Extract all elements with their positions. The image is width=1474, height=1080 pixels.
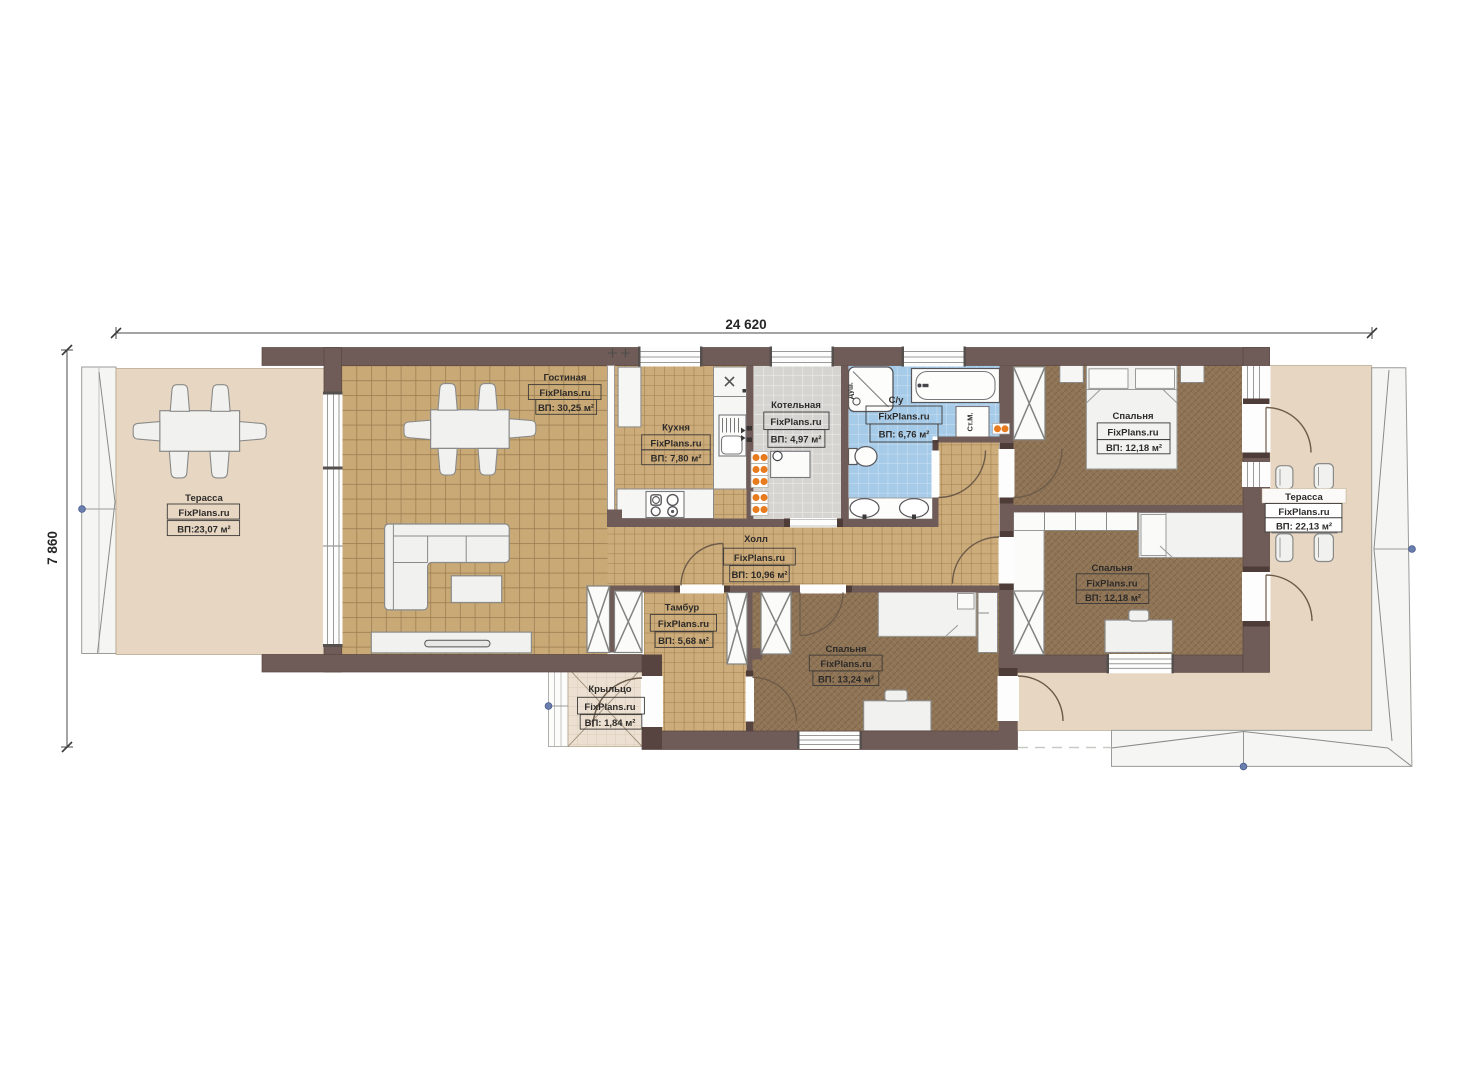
svg-text:FixPlans.ru: FixPlans.ru	[1086, 578, 1137, 589]
svg-text:FixPlans.ru: FixPlans.ru	[1278, 507, 1329, 518]
svg-text:ВП: 1,84 м²: ВП: 1,84 м²	[585, 718, 636, 729]
svg-text:Гостиная: Гостиная	[544, 373, 587, 384]
svg-text:ВП: 5,68 м²: ВП: 5,68 м²	[658, 636, 709, 647]
svg-text:FixPlans.ru: FixPlans.ru	[770, 417, 821, 428]
svg-text:Спальня: Спальня	[825, 644, 866, 655]
svg-text:Крыльцо: Крыльцо	[588, 684, 631, 695]
svg-text:Холл: Холл	[744, 534, 768, 545]
svg-text:FixPlans.ru: FixPlans.ru	[650, 438, 701, 449]
svg-text:FixPlans.ru: FixPlans.ru	[878, 412, 929, 423]
svg-text:ВП: 30,25 м²: ВП: 30,25 м²	[538, 403, 594, 414]
svg-text:Терасса: Терасса	[185, 493, 223, 504]
svg-text:ВП: 6,76 м²: ВП: 6,76 м²	[879, 430, 930, 441]
svg-text:Ст.М.: Ст.М.	[966, 413, 975, 432]
svg-text:ВП: 4,97 м²: ВП: 4,97 м²	[771, 435, 822, 446]
svg-text:FixPlans.ru: FixPlans.ru	[539, 388, 590, 399]
svg-text:Терасса: Терасса	[1285, 492, 1323, 503]
svg-text:ВП: 7,80 м²: ВП: 7,80 м²	[651, 453, 702, 464]
svg-text:Тамбур: Тамбур	[665, 603, 700, 614]
svg-text:ВП:23,07 м²: ВП:23,07 м²	[177, 524, 230, 535]
svg-text:FixPlans.ru: FixPlans.ru	[820, 659, 871, 670]
svg-text:Спальня: Спальня	[1112, 411, 1153, 422]
svg-text:FixPlans.ru: FixPlans.ru	[734, 553, 785, 564]
svg-text:Душ.: Душ.	[848, 382, 855, 399]
svg-text:FixPlans.ru: FixPlans.ru	[658, 619, 709, 630]
svg-text:Кухня: Кухня	[662, 423, 690, 434]
svg-text:Котельная: Котельная	[771, 400, 821, 411]
svg-text:7 860: 7 860	[45, 531, 60, 565]
svg-text:FixPlans.ru: FixPlans.ru	[584, 702, 635, 713]
svg-text:ВП: 22,13 м²: ВП: 22,13 м²	[1276, 521, 1332, 532]
svg-text:Спальня: Спальня	[1091, 563, 1132, 574]
svg-text:ВП: 12,18 м²: ВП: 12,18 м²	[1085, 593, 1141, 604]
svg-text:FixPlans.ru: FixPlans.ru	[178, 508, 229, 519]
svg-text:24 620: 24 620	[725, 317, 766, 332]
svg-text:ВП: 10,96 м²: ВП: 10,96 м²	[731, 570, 787, 581]
svg-text:FixPlans.ru: FixPlans.ru	[1107, 428, 1158, 439]
svg-text:ВП: 12,18 м²: ВП: 12,18 м²	[1106, 443, 1162, 454]
svg-text:С/у: С/у	[889, 395, 905, 406]
svg-text:ВП: 13,24 м²: ВП: 13,24 м²	[818, 675, 874, 686]
